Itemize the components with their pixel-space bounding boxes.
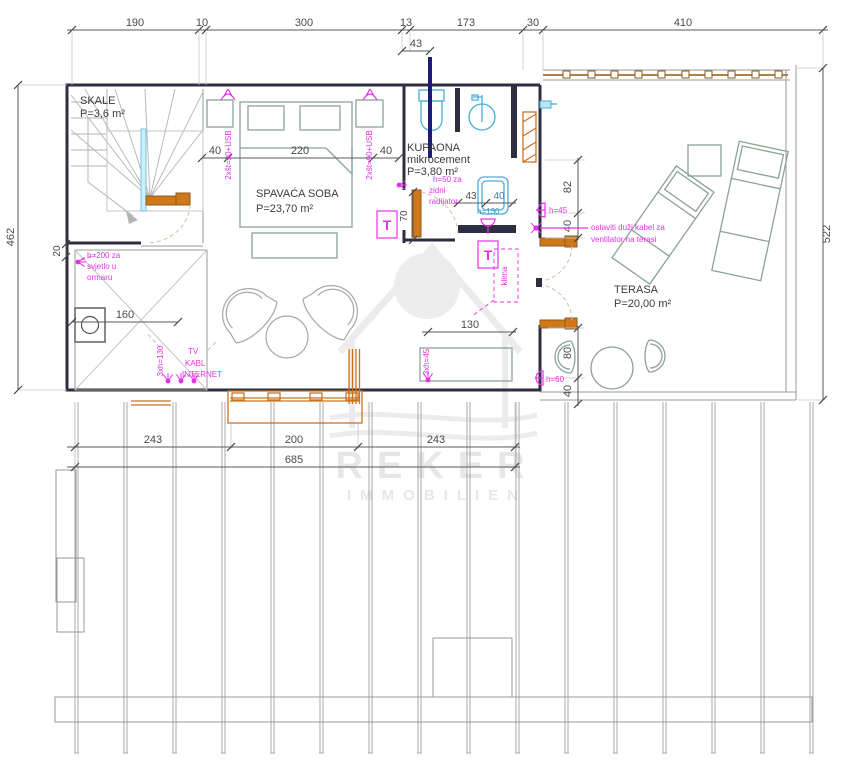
dim-label: 82 (562, 181, 574, 193)
terrace-light-upper-symbol (536, 203, 545, 217)
tv-note-3: INTERNET (182, 370, 222, 379)
dim-label: 243 (427, 434, 445, 446)
watermark-name: REKER (335, 445, 538, 487)
dim-label: 243 (144, 434, 162, 446)
bathroom-right-wall (511, 85, 517, 158)
dim-label: 10 (196, 17, 208, 29)
terrace-light-upper-note: h=45 (549, 206, 568, 215)
washing-machine (75, 308, 105, 342)
radiator-note-1: h=50 za (433, 175, 462, 184)
room-bathroom-material: mikrocement (407, 154, 470, 166)
dim-label: 30 (527, 17, 539, 29)
dim-label: 43 (410, 38, 422, 50)
watermark-logo: REKER IMMOBILIEN (330, 248, 539, 504)
dim-label: 173 (457, 17, 475, 29)
dim-label: 190 (126, 17, 144, 29)
dim-label: 522 (821, 225, 833, 243)
terrace-door-swings (542, 246, 572, 320)
dim-label: 20 (52, 245, 63, 257)
stair-glass-panel (141, 129, 146, 211)
bed-bench (252, 233, 337, 258)
pillow-right (300, 106, 340, 130)
socket-note-right: 2xšt=90+USB (365, 130, 374, 179)
dim-label: 40 (493, 191, 505, 202)
sink-faucet (472, 95, 482, 122)
radiator-note-2: zidni (429, 186, 446, 195)
dim-label: 130 (461, 319, 479, 331)
room-skale-area: P=3,6 m² (80, 108, 125, 120)
room-skale-name: SKALE (80, 95, 115, 107)
shower-height-note: h=130 (477, 207, 500, 216)
dim-label: 40 (562, 220, 574, 232)
terrace-table (591, 347, 633, 389)
floor-plan-page: REKER IMMOBILIEN (0, 0, 857, 762)
dim-label: 13 (400, 17, 412, 29)
fan-note-1: ostaviti duži kabel za (591, 223, 665, 232)
dim-label: 220 (291, 145, 309, 157)
room-bedroom-area: P=23,70 m² (256, 203, 314, 215)
dim-label: 40 (380, 145, 392, 157)
tv-sockets-note: 3xh=130 (156, 345, 165, 376)
deck-cap-3 (310, 393, 322, 400)
bathroom-divider-wall (455, 88, 460, 132)
room-terrace-area: P=20,00 m² (614, 298, 672, 310)
skale-door-handle (176, 193, 190, 205)
t-box-1-label: T (383, 217, 392, 233)
watermark-subtitle: IMMOBILIEN (347, 487, 527, 504)
watermark-sun (394, 253, 460, 319)
deck-cap-2 (268, 393, 280, 400)
pergola-left-post (57, 558, 84, 632)
terrace-bath-door-hatch (523, 114, 536, 162)
dim-label: 462 (5, 228, 17, 246)
wardrobe-light-note-3: ormaru (87, 273, 112, 282)
wardrobe (75, 250, 207, 390)
socket-note-left: 2xšt=90+USB (224, 130, 233, 179)
bench-sockets-note: 3xh=45 (422, 348, 431, 375)
wood-sill (131, 401, 171, 405)
dim-label: 160 (116, 309, 134, 321)
klima-label: klima (500, 266, 509, 285)
t-box-2-label: T (484, 247, 493, 263)
pergola-bump (433, 638, 512, 697)
pillow-left (248, 106, 284, 130)
floor-plan-drawing: REKER IMMOBILIEN (0, 0, 857, 762)
socket-arrow-left (221, 89, 235, 100)
nightstand-left (207, 100, 233, 127)
dim-label: 43 (465, 191, 477, 202)
dim-label: 410 (674, 17, 692, 29)
room-bathroom-name: KUPAONA (407, 142, 461, 154)
wall-valve (540, 101, 551, 108)
dim-label: 685 (285, 454, 303, 466)
nightstand-right (356, 100, 383, 127)
room-bedroom-name: SPAVAĆA SOBA (256, 187, 339, 200)
wood-deck-lines (230, 398, 360, 401)
stair-direction-arrow (126, 211, 138, 224)
dim-label: 200 (285, 434, 303, 446)
pergola-beam (55, 697, 812, 722)
sun-lounger-right (712, 141, 788, 281)
sideboard (420, 348, 512, 381)
coffee-table (266, 316, 308, 358)
deck-cap-1 (232, 393, 244, 400)
dim-label: 300 (295, 17, 313, 29)
dim-label: 40 (562, 385, 574, 397)
bedroom-furniture (207, 100, 383, 258)
dim-label: 80 (562, 347, 574, 359)
dim-label: 40 (209, 145, 221, 157)
terrace-chair-right (645, 340, 665, 372)
terrace-furniture (555, 141, 788, 389)
terrace-right-edge (786, 65, 796, 400)
terrace-door-handle-bottom (565, 318, 577, 329)
radiator-note-3: radijator (429, 197, 458, 206)
bath-light-symbol (481, 219, 495, 226)
armchair-left (210, 276, 283, 349)
fan-note-2: ventilator na terasi (591, 235, 657, 244)
wardrobe-light-note-2: svjetlo u (87, 262, 116, 271)
pergola-left-column (56, 470, 76, 602)
washing-machine-drum (82, 317, 99, 334)
terrace-side-table (688, 145, 721, 176)
wardrobe-cross (75, 250, 207, 390)
socket-arrow-right (363, 89, 377, 100)
room-terrace-name: TERASA (614, 284, 659, 296)
terrace-light-lower-note: h=60 (546, 375, 565, 384)
tv-note-2: KABL (185, 359, 206, 368)
tv-note-1: TV (188, 347, 199, 356)
wardrobe-light-note-1: h=200 za (87, 251, 121, 260)
terrace-door-mullion (536, 278, 542, 287)
dim-label: 70 (399, 210, 410, 222)
